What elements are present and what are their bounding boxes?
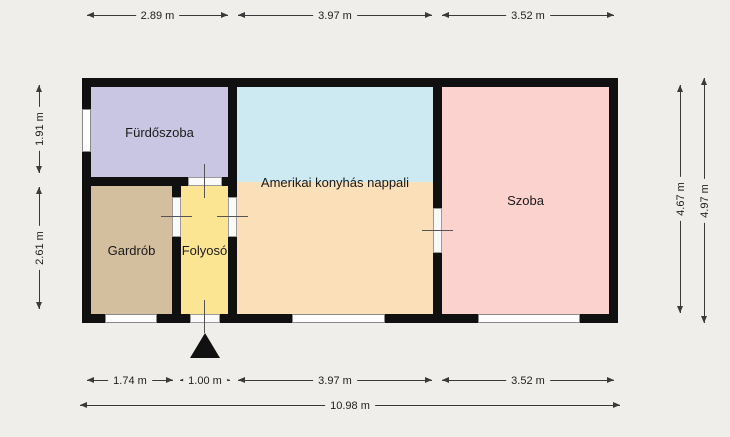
- dim-bottom-corridor: 1.00 m: [180, 375, 230, 387]
- room-living-room: Amerikai konyhás nappali: [237, 87, 433, 314]
- room-wardrobe: Gardrób: [91, 186, 172, 314]
- window-wardrobe-south: [105, 314, 157, 323]
- dim-label: 3.52 m: [506, 375, 550, 387]
- dim-label: 1.00 m: [183, 375, 227, 387]
- window-bedroom-south: [478, 314, 580, 323]
- entrance-arrow-icon: [190, 333, 220, 358]
- dim-label: 1.91 m: [34, 107, 46, 151]
- living-room-kitchen-zone: [237, 87, 433, 182]
- dim-label: 4.97 m: [699, 179, 711, 223]
- dim-label: 10.98 m: [325, 400, 375, 412]
- dim-label: 2.61 m: [34, 226, 46, 270]
- dim-label: 2.89 m: [136, 10, 180, 22]
- window-bathroom-west: [82, 109, 91, 152]
- dim-label: 1.74 m: [108, 375, 152, 387]
- room-corridor: Folyosó: [181, 186, 228, 314]
- door-axis-bathroom: [204, 164, 205, 198]
- dim-bottom-livingroom: 3.97 m: [238, 375, 432, 387]
- door-wardrobe: [172, 197, 181, 237]
- dim-left-wardrobe: 2.61 m: [34, 187, 46, 309]
- wall-exterior-north: [82, 78, 618, 87]
- room-label-wardrobe: Gardrób: [108, 243, 156, 258]
- room-bedroom: Szoba: [442, 87, 609, 314]
- dim-label: 4.67 m: [675, 177, 687, 221]
- dim-total-width: 10.98 m: [80, 400, 620, 412]
- dim-top-bedroom: 3.52 m: [442, 10, 614, 22]
- door-axis-wardrobe: [161, 216, 192, 217]
- dim-top-bathroom: 2.89 m: [87, 10, 228, 22]
- door-axis-entrance: [204, 300, 205, 333]
- wall-exterior-east: [609, 78, 618, 323]
- room-label-living-room: Amerikai konyhás nappali: [237, 175, 433, 190]
- room-bathroom: Fürdőszoba: [91, 87, 228, 177]
- living-room-lounge-zone: [237, 182, 433, 314]
- dim-left-bathroom: 1.91 m: [34, 85, 46, 173]
- floor-plan: Fürdőszoba Gardrób Folyosó Amerikai kony…: [0, 0, 730, 437]
- window-livingroom-south: [292, 314, 385, 323]
- door-bathroom: [188, 177, 222, 186]
- room-label-corridor: Folyosó: [182, 243, 228, 258]
- dim-label: 3.97 m: [313, 375, 357, 387]
- dim-bottom-wardrobe: 1.74 m: [87, 375, 173, 387]
- room-label-bathroom: Fürdőszoba: [125, 125, 194, 140]
- dim-right-interior-height: 4.67 m: [675, 85, 687, 313]
- dim-label: 3.52 m: [506, 10, 550, 22]
- door-corridor-livingroom: [228, 197, 237, 237]
- wall-livingroom-bedroom: [433, 87, 442, 314]
- dim-top-livingroom: 3.97 m: [238, 10, 432, 22]
- dim-bottom-bedroom: 3.52 m: [442, 375, 614, 387]
- door-axis-bedroom: [422, 230, 453, 231]
- door-axis-corridor: [217, 216, 248, 217]
- room-label-bedroom: Szoba: [507, 193, 544, 208]
- dim-right-exterior-height: 4.97 m: [699, 78, 711, 323]
- door-entrance: [190, 314, 220, 323]
- dim-label: 3.97 m: [313, 10, 357, 22]
